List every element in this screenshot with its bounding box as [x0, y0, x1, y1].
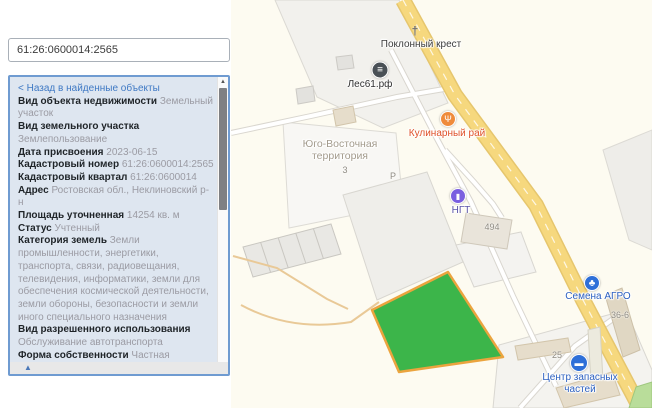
panel-field: Адрес Ростовская обл., Неклиновский р-н: [18, 185, 214, 210]
panel-field: Форма собственности Частная: [18, 350, 214, 362]
centr-zapasnyh-chastey-icon[interactable]: ▬: [570, 354, 588, 372]
map-number-label: Р: [390, 171, 396, 181]
ngt-fuel-station-icon[interactable]: ▮: [450, 188, 466, 204]
field-label: Статус: [18, 223, 52, 234]
field-value: Земли промышленности, энергетики, трансп…: [18, 235, 209, 322]
panel-field: Площадь уточненная 14254 кв. м: [18, 210, 214, 223]
poklonny-krest-icon[interactable]: †: [412, 24, 419, 38]
field-label: Категория земель: [18, 235, 107, 246]
field-value: 61:26:0600014:2565: [119, 159, 214, 170]
field-label: Дата присвоения: [18, 147, 104, 158]
field-label: Форма собственности: [18, 350, 129, 361]
map-drawing: [231, 0, 652, 408]
field-value: 14254 кв. м: [124, 210, 179, 221]
object-info-panel: < Назад в найденные объекты Вид объекта …: [8, 75, 230, 376]
field-value: 2023-06-15: [104, 147, 158, 158]
map-number-label: 494: [484, 222, 499, 232]
panel-field: Категория земель Земли промышленности, э…: [18, 235, 214, 324]
field-label: Площадь уточненная: [18, 210, 124, 221]
map-number-label: 36-6: [611, 310, 629, 320]
semena-agro-icon[interactable]: ♣: [584, 275, 600, 291]
panel-bottom-bar: ▲: [10, 362, 228, 374]
field-label: Адрес: [18, 185, 49, 196]
panel-scrollbar[interactable]: ▲: [217, 77, 228, 362]
field-label: Вид разрешенного использования: [18, 324, 190, 335]
field-value: Частная: [129, 350, 170, 361]
object-info-content: < Назад в найденные объекты Вид объекта …: [10, 77, 218, 362]
panel-field: Дата присвоения 2023-06-15: [18, 147, 214, 160]
field-label: Вид земельного участка: [18, 121, 139, 132]
panel-fields: Вид объекта недвижимости Земельный участ…: [18, 96, 214, 362]
map-unit-row: [243, 224, 341, 277]
field-label: Кадастровый квартал: [18, 172, 127, 183]
panel-field: Вид земельного участка Землепользование: [18, 121, 214, 146]
map-number-label: 25: [552, 350, 562, 360]
semena-agro-label[interactable]: Семена АГРО: [565, 291, 630, 303]
territory-label: Юго-Восточнаятерритория: [303, 139, 378, 162]
back-to-results-link[interactable]: < Назад в найденные объекты: [18, 83, 214, 96]
panel-field: Вид разрешенного использования Обслужива…: [18, 324, 214, 349]
map-canvas[interactable]: †Поклонный крест≡Лес61.рфΨКулинарный рай…: [231, 0, 652, 408]
panel-field: Статус Учтенный: [18, 223, 214, 236]
map-number-label: 3: [342, 165, 347, 175]
field-value: Учтенный: [52, 223, 100, 234]
panel-field: Вид объекта недвижимости Земельный участ…: [18, 96, 214, 121]
ngt-fuel-station-label[interactable]: НГТ: [452, 205, 471, 217]
les61-rf-icon[interactable]: ≡: [372, 62, 389, 79]
collapse-panel-icon[interactable]: ▲: [24, 363, 32, 373]
les61-rf-label[interactable]: Лес61.рф: [348, 79, 393, 91]
poklonny-krest-label[interactable]: Поклонный крест: [381, 39, 461, 51]
field-label: Вид объекта недвижимости: [18, 96, 157, 107]
kulinarny-ray-label[interactable]: Кулинарный рай: [409, 128, 485, 140]
centr-zapasnyh-chastey-label[interactable]: Центр запасныхчастей: [542, 372, 617, 395]
search-input[interactable]: [8, 38, 230, 62]
field-value: 61:26:0600014: [127, 172, 197, 183]
field-label: Кадастровый номер: [18, 159, 119, 170]
panel-field: Кадастровый квартал 61:26:0600014: [18, 172, 214, 185]
scrollbar-up-icon[interactable]: ▲: [218, 77, 228, 87]
scrollbar-thumb[interactable]: [219, 88, 227, 210]
kulinarny-ray-icon[interactable]: Ψ: [440, 111, 456, 127]
field-value: Обслуживание автотранспорта: [18, 337, 163, 348]
panel-field: Кадастровый номер 61:26:0600014:2565: [18, 159, 214, 172]
field-value: Землепользование: [18, 134, 107, 145]
